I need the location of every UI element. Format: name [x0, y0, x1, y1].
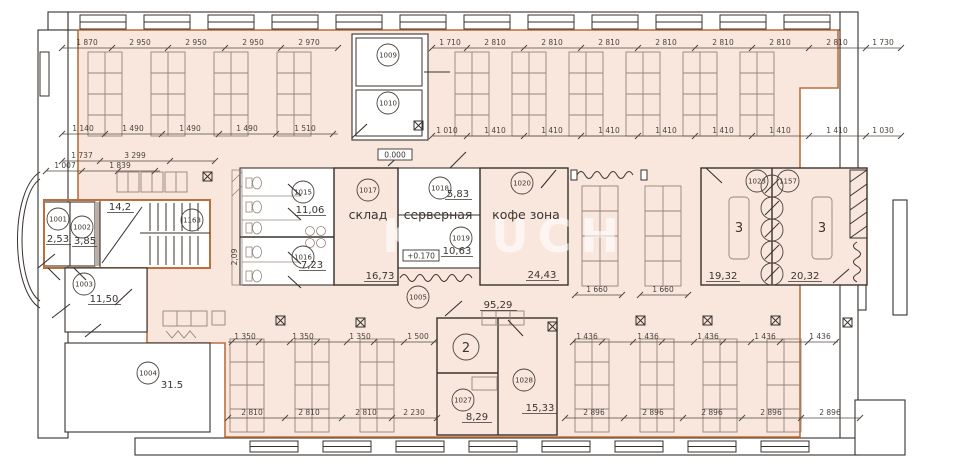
dim-label: 1 660 [586, 285, 608, 294]
dim-label: 2 810 [541, 38, 563, 47]
dim-label: 1 410 [655, 126, 677, 135]
dim-label: 1 350 [292, 332, 314, 341]
room-area: 14,2 [109, 202, 131, 213]
dim-label: 1 436 [809, 332, 831, 341]
dim-label: 2 810 [355, 408, 377, 417]
room-number: 1017 [359, 187, 377, 195]
dim-label: 2 896 [642, 408, 664, 417]
dim-label: 2 950 [129, 38, 151, 47]
room-area: 2,53 [47, 234, 69, 245]
room-number: 1028 [515, 377, 533, 385]
dim-label: 2 810 [655, 38, 677, 47]
dim-label: 3 299 [124, 151, 146, 160]
floor-plan-canvas: KLIUCH 1 870 2 950 2 950 2 950 2 970 1 7… [0, 0, 958, 468]
room-area: 11,50 [90, 294, 119, 305]
dim-label: 2,09 [230, 248, 239, 265]
room-area: 24,43 [528, 270, 557, 281]
dim-label: 1 490 [122, 124, 144, 133]
dim-label: 1 730 [872, 38, 894, 47]
dim-label: 1 410 [712, 126, 734, 135]
room-number: 1015 [294, 189, 312, 197]
dim-label: 1 410 [598, 126, 620, 135]
room-area: 95,29 [484, 300, 513, 311]
dim-label: 1 410 [484, 126, 506, 135]
dim-label: 1 007 [54, 161, 76, 170]
dim-label: 2 810 [712, 38, 734, 47]
dim-label: 2 810 [769, 38, 791, 47]
room-number: 1002 [73, 224, 91, 232]
dim-label: 2 896 [760, 408, 782, 417]
room-1004 [65, 343, 210, 432]
room-number: 1020 [513, 180, 531, 188]
dim-label: 1 010 [436, 126, 458, 135]
dim-label: 1 490 [179, 124, 201, 133]
dim-label: 1 436 [576, 332, 598, 341]
dim-label: 1 350 [234, 332, 256, 341]
zone-label: 3 [818, 221, 826, 236]
entrance-bay-inner-arc [22, 179, 40, 301]
dim-label: 1 410 [826, 126, 848, 135]
room-area: 19,32 [709, 271, 738, 282]
zone-label: 3 [735, 221, 743, 236]
room-number: 1003 [75, 281, 93, 289]
room-number: 1027 [454, 397, 472, 405]
room-area: 16,73 [366, 271, 395, 282]
dim-label: 2 810 [598, 38, 620, 47]
dim-label: 2 896 [583, 408, 605, 417]
room-number: 1163 [183, 217, 201, 225]
room-number: 1157 [779, 178, 797, 186]
dim-label: 1 410 [769, 126, 791, 135]
room-name: склад [349, 207, 388, 222]
dim-label: 2 810 [298, 408, 320, 417]
dim-label: 1 737 [71, 151, 93, 160]
level-server: +0.170 [407, 252, 435, 261]
dim-label: 2 230 [403, 408, 425, 417]
dim-label: 1 710 [439, 38, 461, 47]
dim-label: 2 950 [185, 38, 207, 47]
room-area: 7,23 [301, 260, 323, 271]
dim-label: 1 870 [76, 38, 98, 47]
room-area: 8,29 [466, 412, 488, 423]
room-area: 5,83 [447, 189, 469, 200]
dim-label: 1 490 [236, 124, 258, 133]
dim-label: 1 140 [72, 124, 94, 133]
dim-label: 2 950 [242, 38, 264, 47]
dim-label: 1 510 [294, 124, 316, 133]
dim-label: 2 896 [819, 408, 841, 417]
dim-label: 1 436 [637, 332, 659, 341]
room-area: 3,85 [74, 236, 96, 247]
dim-label: 2 810 [484, 38, 506, 47]
room-area: 11,06 [296, 205, 325, 216]
room-area: 10,63 [443, 246, 472, 257]
dim-label: 1 350 [349, 332, 371, 341]
entrance-bay-outer-arc [18, 172, 41, 308]
room-number: 1023 [748, 178, 766, 186]
room-number: 1001 [49, 216, 67, 224]
floor-plan-page: KLIUCH 1 870 2 950 2 950 2 950 2 970 1 7… [0, 0, 958, 468]
room-number: 1009 [379, 52, 397, 60]
room-number: 1010 [379, 100, 397, 108]
dim-label: 1 436 [697, 332, 719, 341]
dim-label: 2 896 [701, 408, 723, 417]
dim-label: 2 810 [826, 38, 848, 47]
room-number: 1004 [139, 370, 157, 378]
dim-label: 2 810 [241, 408, 263, 417]
room-area: 15,33 [526, 403, 555, 414]
room-name: кофе зона [492, 207, 560, 222]
room-name: серверная [404, 207, 473, 222]
room-number: 1005 [409, 294, 427, 302]
room-area: 31.5 [161, 380, 183, 391]
room-area: 20,32 [791, 271, 820, 282]
dim-label: 1 410 [541, 126, 563, 135]
dim-label: 1 436 [754, 332, 776, 341]
dim-label: 1 030 [872, 126, 894, 135]
stair-number: 2 [462, 341, 470, 356]
dim-label: 1 500 [407, 332, 429, 341]
dim-label: 2 970 [298, 38, 320, 47]
level-ground: 0.000 [384, 151, 406, 160]
room-number: 1019 [452, 235, 470, 243]
dim-label: 1 839 [109, 161, 131, 170]
dim-label: 1 660 [652, 285, 674, 294]
